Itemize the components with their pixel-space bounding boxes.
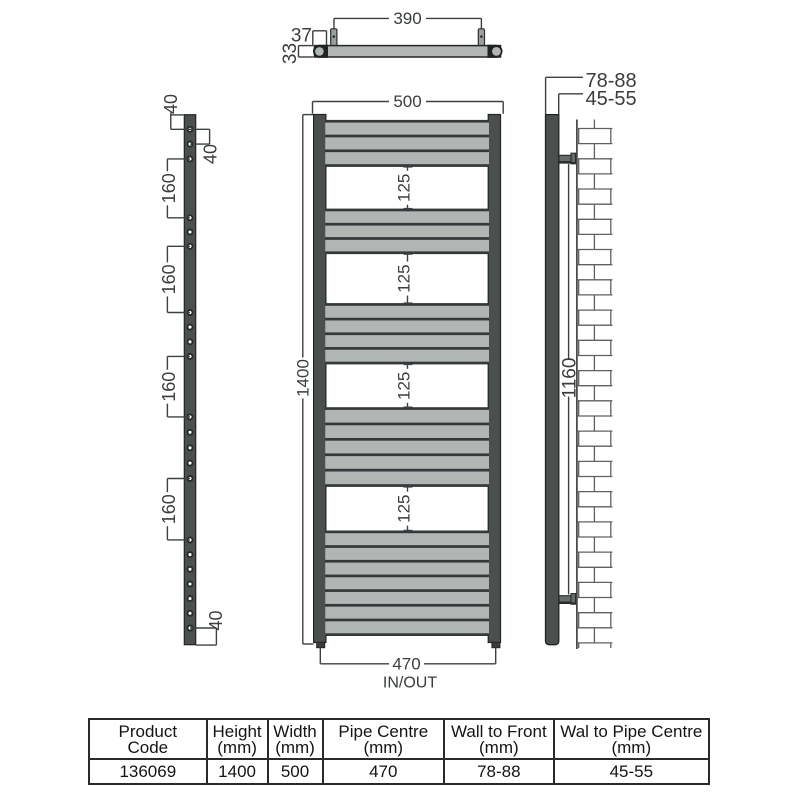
svg-text:IN/OUT: IN/OUT [383,675,437,692]
svg-text:40: 40 [161,94,181,114]
svg-text:160: 160 [159,372,179,402]
svg-text:470: 470 [392,655,420,674]
svg-text:125: 125 [395,372,414,400]
svg-text:125: 125 [395,264,414,292]
svg-text:390: 390 [393,9,421,28]
svg-text:45-55: 45-55 [586,88,637,110]
svg-text:33: 33 [280,43,301,64]
svg-text:500: 500 [393,92,421,111]
svg-text:125: 125 [395,495,414,523]
svg-text:125: 125 [395,174,414,202]
svg-text:160: 160 [159,264,179,294]
svg-text:160: 160 [159,173,179,203]
svg-text:160: 160 [159,494,179,524]
svg-text:40: 40 [206,610,226,630]
svg-text:40: 40 [200,144,220,164]
svg-text:1400: 1400 [293,359,312,397]
